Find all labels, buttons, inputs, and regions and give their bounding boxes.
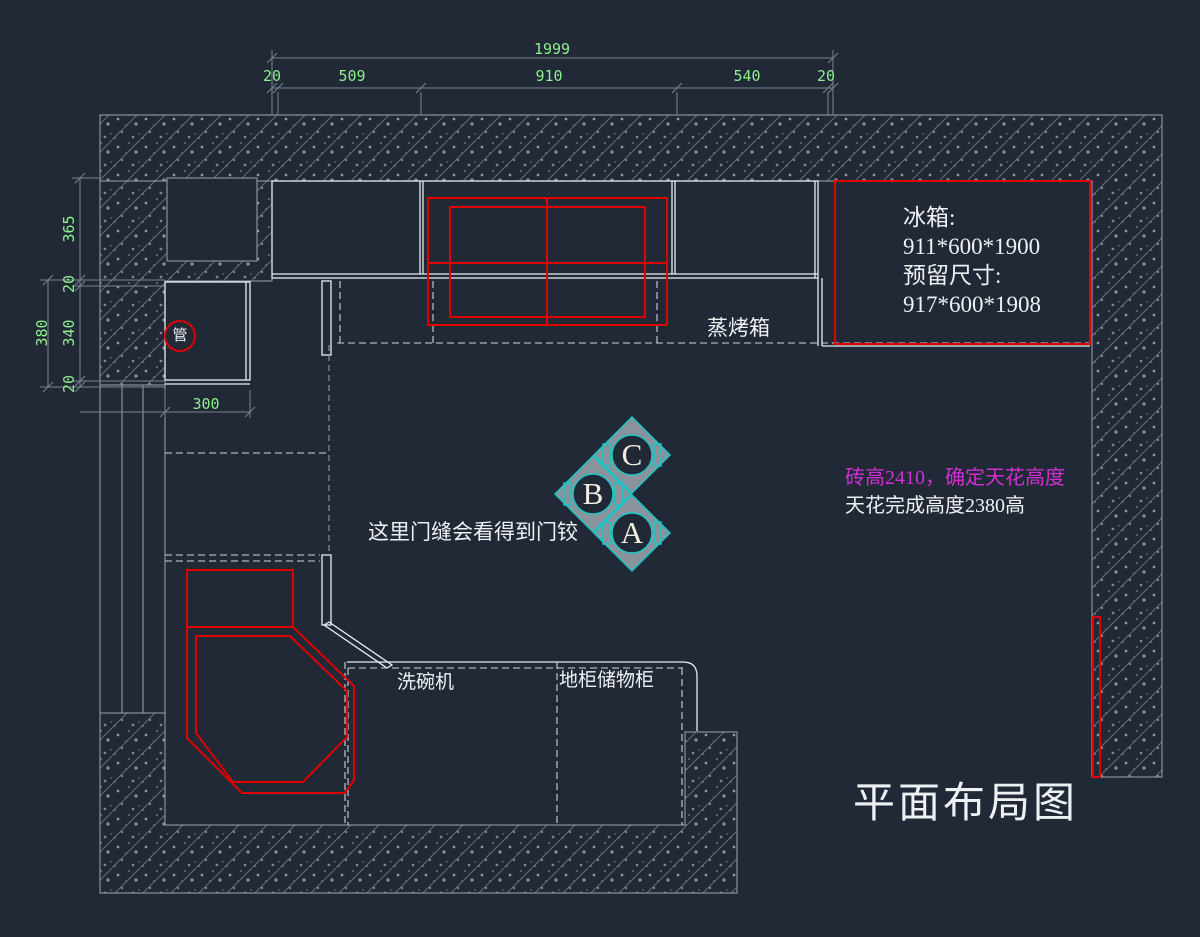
dim-top-seg-2: 509	[322, 67, 382, 85]
dim-top-seg-3: 910	[519, 67, 579, 85]
dim-left-seg-4: 20	[60, 354, 78, 414]
tile-height-note: 砖高2410，确定天花高度	[845, 466, 1065, 490]
steam-oven-label: 蒸烤箱	[707, 316, 770, 341]
dim-top-seg-5: 20	[796, 67, 856, 85]
page-title: 平面布局图	[853, 779, 1078, 829]
corner-sink-outer	[187, 627, 354, 793]
dim-pipe-box: 300	[176, 395, 236, 413]
door-jamb-upper	[322, 281, 331, 355]
fridge-note-line-2: 911*600*1900	[903, 232, 1041, 261]
ceiling-height-note: 天花完成高度2380高	[845, 494, 1025, 518]
door-jamb-lower	[322, 555, 331, 625]
corner-cabinet-top	[187, 570, 293, 627]
fridge-note: 冰箱: 911*600*1900 预留尺寸: 917*600*1908	[903, 203, 1041, 319]
marker-c-label: C	[612, 437, 652, 473]
marker-b-label: B	[573, 476, 613, 512]
pipe-label: 管	[166, 327, 194, 345]
left-wall-opening	[100, 385, 165, 713]
door-hinge-note: 这里门缝会看得到门铰	[368, 520, 578, 545]
fridge-note-line-1: 冰箱:	[903, 203, 1041, 232]
dim-top-seg-4: 540	[717, 67, 777, 85]
dim-top-seg-1: 20	[242, 67, 302, 85]
dim-top-total: 1999	[522, 40, 582, 58]
dishwasher-label: 洗碗机	[397, 672, 454, 695]
fridge-note-line-3: 预留尺寸:	[903, 261, 1041, 290]
base-storage-cabinet-label: 地柜储物柜	[559, 670, 654, 693]
dim-left-seg-1: 365	[60, 199, 78, 259]
dim-left-outer: 380	[33, 303, 51, 363]
marker-a-label: A	[612, 515, 652, 551]
fridge-note-line-4: 917*600*1908	[903, 290, 1041, 319]
floorplan-canvas: 1999 20 509 910 540 20 365 20 340 20 380…	[0, 0, 1200, 937]
door-leaf	[324, 622, 392, 668]
wall-recess	[167, 178, 257, 261]
